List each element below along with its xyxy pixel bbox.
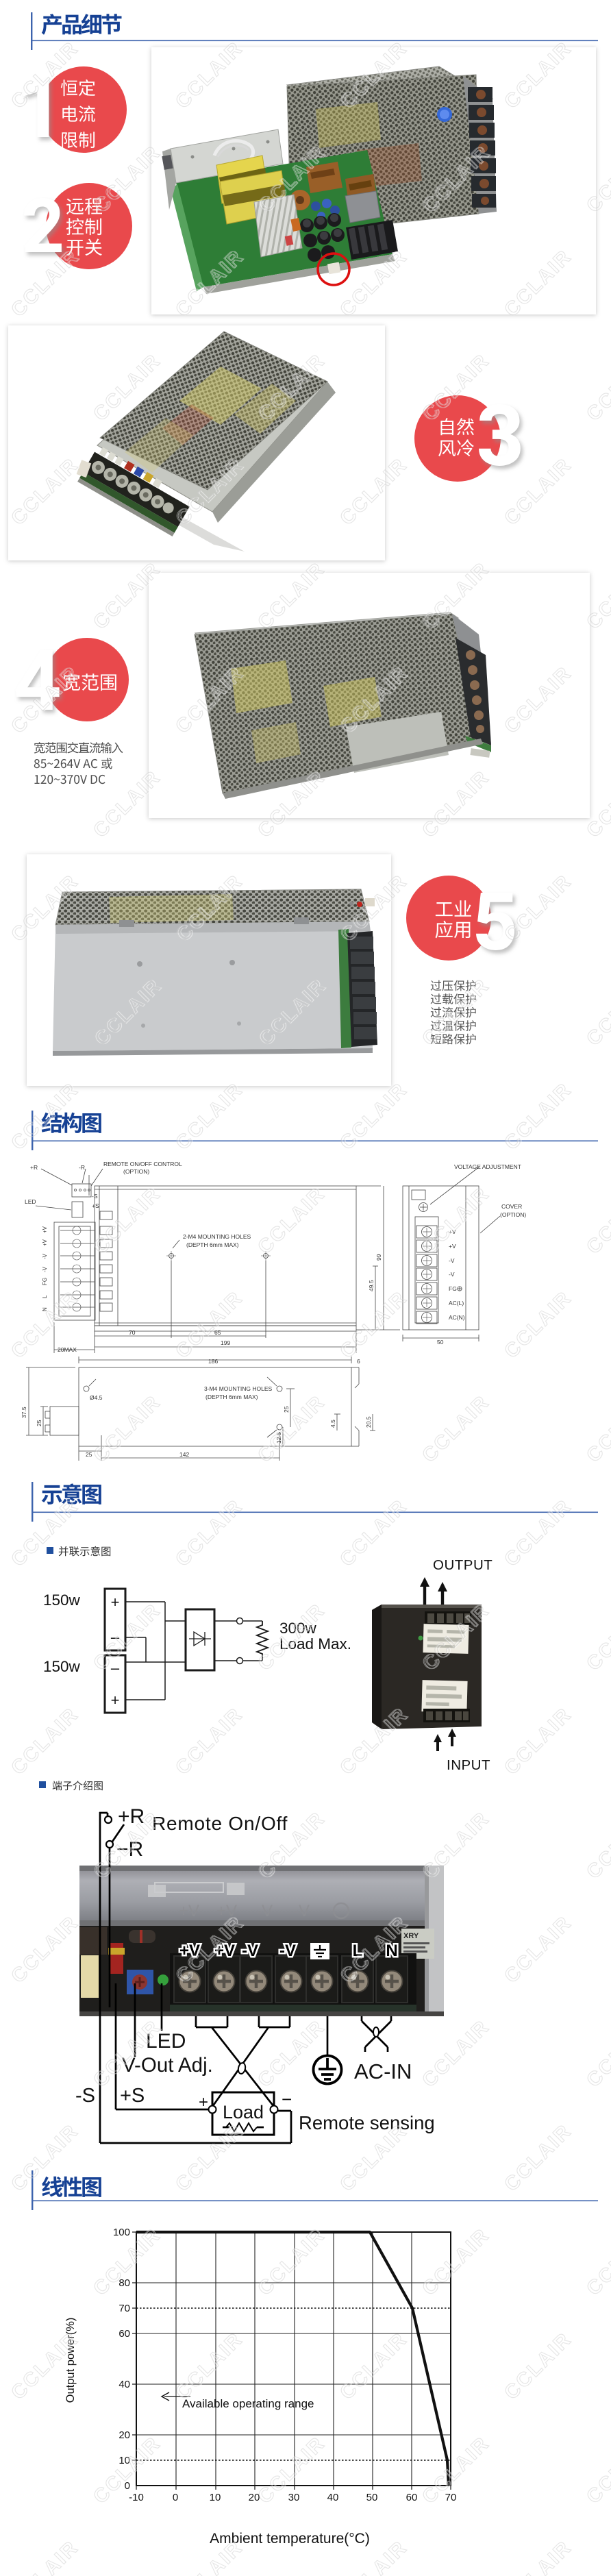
svg-text:199: 199	[221, 1339, 230, 1346]
svg-text:50: 50	[437, 1339, 444, 1346]
svg-text:OUTPUT: OUTPUT	[433, 1557, 492, 1573]
svg-text:4.5: 4.5	[329, 1420, 336, 1428]
svg-text:150w: 150w	[43, 1658, 81, 1675]
svg-text:+V: +V	[42, 1226, 48, 1233]
svg-text:CCLAIR: CCLAIR	[582, 349, 611, 425]
svg-text:Load Max.: Load Max.	[279, 1635, 351, 1652]
svg-text:+V: +V	[42, 1239, 48, 1246]
svg-text:+V: +V	[449, 1243, 456, 1250]
svg-text:37.5: 37.5	[21, 1407, 27, 1418]
svg-text:+: +	[199, 2093, 208, 2111]
svg-text:0: 0	[125, 2480, 130, 2492]
svg-text:99: 99	[375, 1254, 382, 1261]
svg-text:30: 30	[288, 2492, 300, 2503]
svg-text:-V: -V	[449, 1271, 455, 1278]
svg-text:FG: FG	[449, 1285, 457, 1292]
svg-text:Load: Load	[223, 2102, 264, 2122]
svg-text:+R: +R	[30, 1164, 38, 1171]
svg-text:186: 186	[208, 1358, 218, 1365]
svg-text:+S: +S	[120, 2085, 145, 2107]
svg-text:N: N	[42, 1307, 48, 1311]
svg-text:(OPTION): (OPTION)	[123, 1168, 149, 1175]
svg-text:80: 80	[119, 2277, 130, 2289]
svg-text:40: 40	[119, 2379, 130, 2390]
svg-text:+: +	[111, 1692, 120, 1709]
svg-text:CCLAIR: CCLAIR	[0, 349, 1, 425]
svg-text:2-M4 MOUNTING HOLES: 2-M4 MOUNTING HOLES	[183, 1233, 251, 1240]
svg-text:Remote On/Off: Remote On/Off	[152, 1813, 288, 1834]
svg-text:AC(L): AC(L)	[449, 1300, 464, 1306]
svg-text:60: 60	[406, 2492, 418, 2503]
svg-text:3-M4 MOUNTING HOLES: 3-M4 MOUNTING HOLES	[204, 1385, 273, 1392]
svg-text:–: –	[111, 1628, 120, 1646]
svg-text:Ø4.5: Ø4.5	[90, 1394, 103, 1401]
svg-text:CCLAIR: CCLAIR	[0, 766, 2, 842]
svg-text:25: 25	[36, 1420, 42, 1426]
svg-text:60: 60	[119, 2328, 130, 2340]
svg-text:142: 142	[179, 1451, 189, 1458]
svg-text:20MAX: 20MAX	[58, 1346, 77, 1353]
svg-text:+S: +S	[92, 1202, 99, 1209]
svg-text:-10: -10	[129, 2492, 144, 2503]
svg-text:REMOTE ON/OFF CONTROL: REMOTE ON/OFF CONTROL	[103, 1161, 182, 1167]
svg-text:CCLAIR: CCLAIR	[584, 974, 611, 1050]
svg-text:CCLAIR: CCLAIR	[0, 141, 1, 217]
svg-text:LED: LED	[146, 2030, 186, 2053]
svg-text:+: +	[111, 1594, 120, 1611]
svg-text:+V: +V	[449, 1228, 456, 1235]
svg-text:CCLAIR: CCLAIR	[584, 349, 611, 425]
svg-text:CCLAIR: CCLAIR	[0, 141, 2, 217]
svg-text:-S: -S	[92, 1193, 98, 1200]
svg-text:300w: 300w	[279, 1620, 317, 1637]
svg-text:−R: −R	[116, 1838, 143, 1861]
svg-text:70: 70	[445, 2492, 457, 2503]
svg-text:12.5: 12.5	[275, 1432, 282, 1444]
svg-text:L: L	[42, 1295, 48, 1298]
svg-text:10: 10	[119, 2455, 130, 2466]
svg-text:-R: -R	[79, 1164, 85, 1171]
svg-text:COVER: COVER	[501, 1203, 522, 1210]
svg-text:–: –	[111, 1659, 120, 1676]
svg-text:(DEPTH 6mm MAX): (DEPTH 6mm MAX)	[205, 1394, 258, 1400]
svg-text:AC-IN: AC-IN	[354, 2059, 412, 2083]
svg-text:Remote sensing: Remote sensing	[299, 2112, 435, 2133]
svg-text:+R: +R	[118, 1805, 145, 1828]
svg-text:VOLTAGE ADJUSTMENT: VOLTAGE ADJUSTMENT	[454, 1163, 521, 1170]
svg-text:10: 10	[210, 2492, 221, 2503]
svg-text:-S: -S	[75, 2085, 95, 2107]
svg-text:LED: LED	[25, 1198, 36, 1205]
svg-text:FG: FG	[42, 1278, 48, 1285]
svg-text:(OPTION): (OPTION)	[500, 1211, 526, 1218]
svg-text:−: −	[282, 2089, 292, 2109]
svg-text:INPUT: INPUT	[447, 1757, 490, 1773]
svg-text:CCLAIR: CCLAIR	[0, 766, 1, 842]
svg-text:20: 20	[249, 2492, 260, 2503]
svg-text:CCLAIR: CCLAIR	[582, 1599, 611, 1675]
svg-text:CCLAIR: CCLAIR	[0, 974, 2, 1050]
svg-text:70: 70	[119, 2303, 130, 2314]
svg-text:-V: -V	[449, 1257, 455, 1264]
svg-text:0: 0	[173, 2492, 178, 2503]
svg-text:6: 6	[357, 1358, 360, 1365]
svg-text:20: 20	[119, 2429, 130, 2441]
svg-text:AC(N): AC(N)	[449, 1314, 465, 1321]
svg-text:CCLAIR: CCLAIR	[0, 974, 1, 1050]
svg-text:150w: 150w	[43, 1592, 81, 1609]
svg-text:70: 70	[129, 1329, 136, 1336]
svg-text:-V: -V	[42, 1266, 48, 1272]
svg-text:Ambient temperature(°C): Ambient temperature(°C)	[210, 2531, 370, 2547]
svg-text:50: 50	[366, 2492, 378, 2503]
svg-text:20.5: 20.5	[365, 1416, 372, 1428]
svg-text:-V: -V	[42, 1253, 48, 1259]
svg-text:49.5: 49.5	[368, 1280, 375, 1291]
svg-text:Output power(%): Output power(%)	[64, 2318, 77, 2403]
svg-text:(DEPTH 6mm MAX): (DEPTH 6mm MAX)	[186, 1241, 239, 1248]
svg-text:100: 100	[113, 2227, 130, 2238]
svg-text:CCLAIR: CCLAIR	[584, 1599, 611, 1675]
svg-text:40: 40	[327, 2492, 339, 2503]
svg-text:25: 25	[86, 1451, 92, 1458]
svg-text:CCLAIR: CCLAIR	[0, 349, 2, 425]
svg-text:25: 25	[283, 1406, 290, 1413]
svg-text:V-Out Adj.: V-Out Adj.	[122, 2054, 213, 2077]
svg-text:Available operating range: Available operating range	[182, 2397, 314, 2410]
svg-text:CCLAIR: CCLAIR	[582, 974, 611, 1050]
svg-text:65: 65	[214, 1329, 221, 1336]
